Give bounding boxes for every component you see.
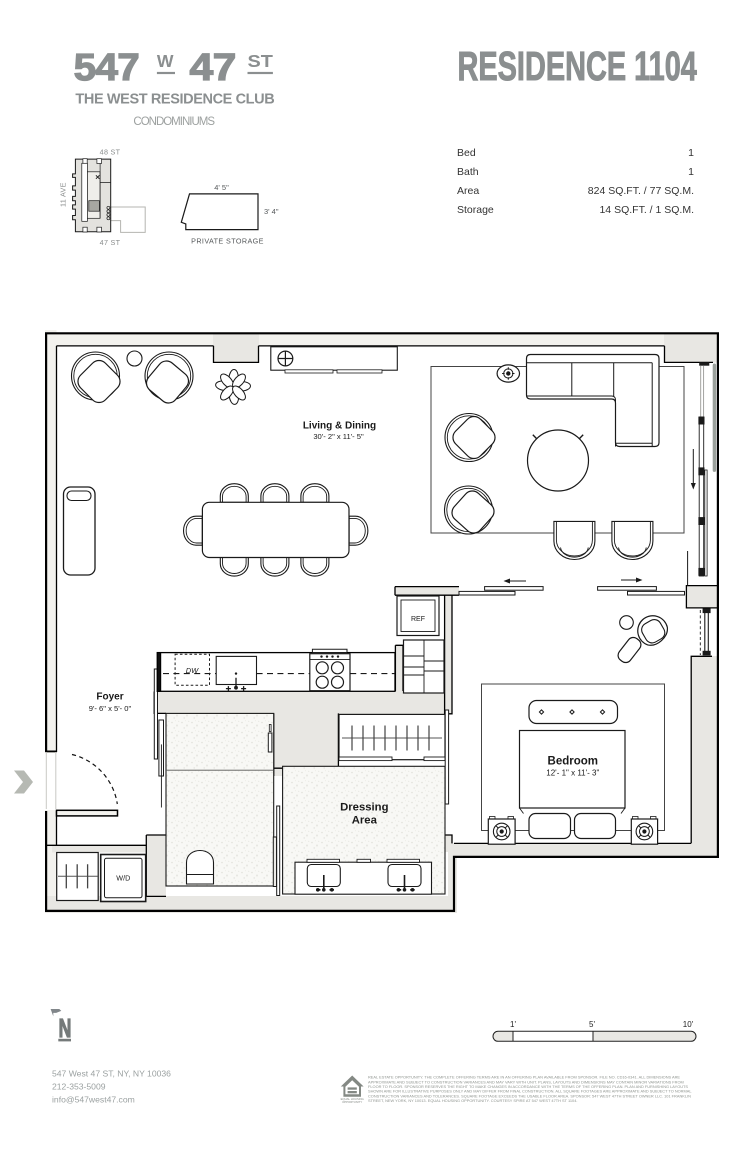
svg-text:4' 5": 4' 5"	[214, 183, 229, 192]
svg-text:RESIDENCE 1104: RESIDENCE 1104	[458, 43, 698, 89]
svg-text:Dressing: Dressing	[340, 802, 388, 814]
svg-text:OPPORTUNITY: OPPORTUNITY	[342, 1100, 362, 1104]
svg-text:REF: REF	[411, 616, 425, 623]
svg-text:W: W	[157, 51, 174, 71]
svg-text:STREET, NEW YORK, NY 10013. EQ: STREET, NEW YORK, NY 10013. EQUAL HOUSIN…	[368, 1098, 577, 1103]
svg-text:info@547west47.com: info@547west47.com	[52, 1095, 135, 1105]
svg-text:Area: Area	[352, 815, 378, 827]
svg-text:9'- 6" x 5'- 0": 9'- 6" x 5'- 0"	[89, 704, 132, 713]
svg-text:THE WEST RESIDENCE CLUB: THE WEST RESIDENCE CLUB	[75, 91, 274, 107]
svg-text:11 AVE: 11 AVE	[59, 182, 68, 207]
svg-text:ST: ST	[248, 51, 274, 71]
svg-text:DW: DW	[186, 666, 199, 675]
svg-text:824 SQ.FT. / 77 SQ.M.: 824 SQ.FT. / 77 SQ.M.	[588, 185, 694, 197]
svg-text:Foyer: Foyer	[96, 692, 123, 703]
svg-text:48 ST: 48 ST	[100, 148, 121, 157]
svg-text:Storage: Storage	[457, 204, 494, 216]
svg-text:Area: Area	[457, 185, 479, 197]
svg-text:1: 1	[688, 166, 694, 178]
svg-text:10': 10'	[683, 1020, 694, 1029]
svg-text:12'- 1" x 11'- 3": 12'- 1" x 11'- 3"	[546, 769, 599, 778]
svg-text:Living & Dining: Living & Dining	[303, 421, 376, 432]
svg-text:212-353-5009: 212-353-5009	[52, 1082, 106, 1092]
svg-text:Bed: Bed	[457, 147, 476, 159]
svg-text:CONDOMINIUMS: CONDOMINIUMS	[133, 116, 215, 128]
svg-text:5': 5'	[589, 1020, 595, 1029]
svg-text:PRIVATE STORAGE: PRIVATE STORAGE	[191, 237, 264, 246]
svg-text:547 West 47 ST, NY, NY 10036: 547 West 47 ST, NY, NY 10036	[52, 1069, 171, 1079]
svg-text:3' 4": 3' 4"	[264, 207, 279, 216]
svg-text:W/D: W/D	[116, 874, 130, 883]
svg-text:47: 47	[190, 45, 236, 88]
svg-text:N: N	[59, 1013, 72, 1042]
svg-text:47 ST: 47 ST	[100, 238, 121, 247]
svg-text:547: 547	[74, 47, 140, 89]
svg-text:Bedroom: Bedroom	[548, 756, 598, 768]
svg-text:30'- 2" x 11'- 5": 30'- 2" x 11'- 5"	[313, 432, 364, 441]
svg-text:14 SQ.FT. / 1 SQ.M.: 14 SQ.FT. / 1 SQ.M.	[599, 204, 694, 216]
svg-text:1': 1'	[510, 1020, 516, 1029]
svg-text:Bath: Bath	[457, 166, 479, 178]
svg-text:1: 1	[688, 147, 694, 159]
